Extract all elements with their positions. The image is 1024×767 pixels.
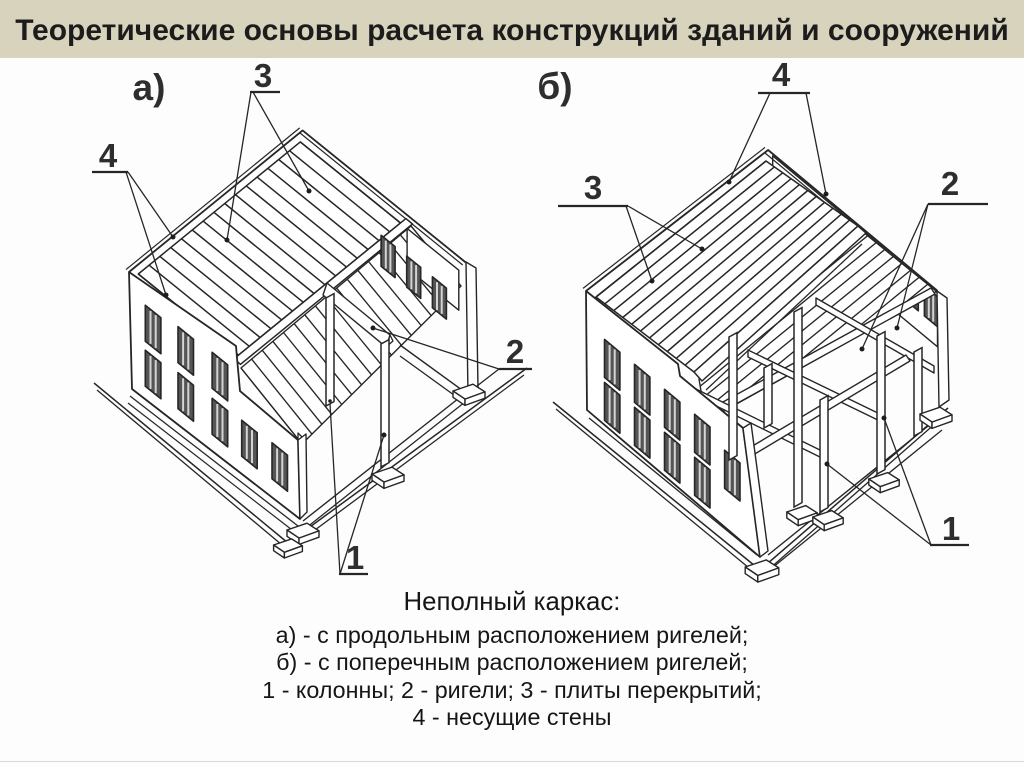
svg-text:3: 3: [254, 57, 272, 94]
svg-text:1: 1: [346, 539, 364, 576]
svg-text:4: 4: [99, 137, 118, 174]
svg-text:2: 2: [941, 165, 959, 202]
svg-text:б): б): [537, 66, 572, 107]
svg-text:2: 2: [506, 333, 524, 370]
svg-text:1: 1: [942, 510, 960, 547]
svg-text:а): а): [133, 67, 166, 108]
svg-text:4: 4: [772, 56, 791, 93]
svg-text:3: 3: [584, 169, 602, 206]
